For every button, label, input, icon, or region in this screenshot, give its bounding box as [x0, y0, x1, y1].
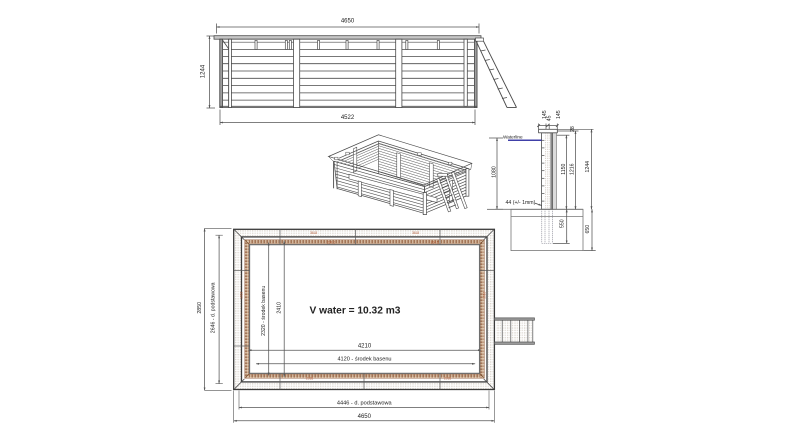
- svg-text:1216: 1216: [570, 163, 576, 175]
- svg-text:2320 - środek basenu: 2320 - środek basenu: [261, 286, 267, 336]
- svg-text:2850: 2850: [197, 302, 203, 314]
- svg-text:Waterline: Waterline: [503, 135, 523, 140]
- svg-text:4210: 4210: [358, 344, 372, 350]
- svg-text:1080: 1080: [491, 166, 497, 178]
- svg-text:1244: 1244: [585, 161, 591, 173]
- svg-text:4120 - środek basenu: 4120 - środek basenu: [337, 357, 391, 363]
- svg-text:2410: 2410: [277, 302, 283, 314]
- svg-text:3618: 3618: [310, 231, 317, 235]
- svg-text:550: 550: [560, 219, 566, 228]
- svg-text:650: 650: [585, 225, 591, 234]
- svg-text:204.5: 204.5: [431, 241, 439, 245]
- svg-text:45: 45: [547, 115, 553, 121]
- svg-text:4522: 4522: [341, 115, 355, 121]
- svg-text:28: 28: [570, 126, 576, 132]
- svg-text:2018: 2018: [306, 377, 313, 381]
- svg-text:1150: 1150: [561, 164, 567, 175]
- svg-text:2018: 2018: [444, 377, 451, 381]
- svg-text:2646 - d. podstawowa: 2646 - d. podstawowa: [211, 282, 217, 333]
- svg-text:V water = 10.32 m3: V water = 10.32 m3: [310, 306, 401, 317]
- svg-text:204.5: 204.5: [327, 241, 335, 245]
- svg-text:4650: 4650: [341, 19, 355, 25]
- svg-text:1244: 1244: [201, 64, 207, 78]
- svg-text:1818: 1818: [483, 291, 487, 298]
- svg-text:4446 - d. podstawowa: 4446 - d. podstawowa: [337, 400, 393, 406]
- svg-text:145: 145: [556, 110, 562, 119]
- svg-text:3618: 3618: [412, 231, 419, 235]
- svg-text:44 (+/- 1mm): 44 (+/- 1mm): [506, 200, 536, 206]
- svg-text:1818: 1818: [240, 291, 244, 298]
- svg-text:4650: 4650: [358, 414, 372, 420]
